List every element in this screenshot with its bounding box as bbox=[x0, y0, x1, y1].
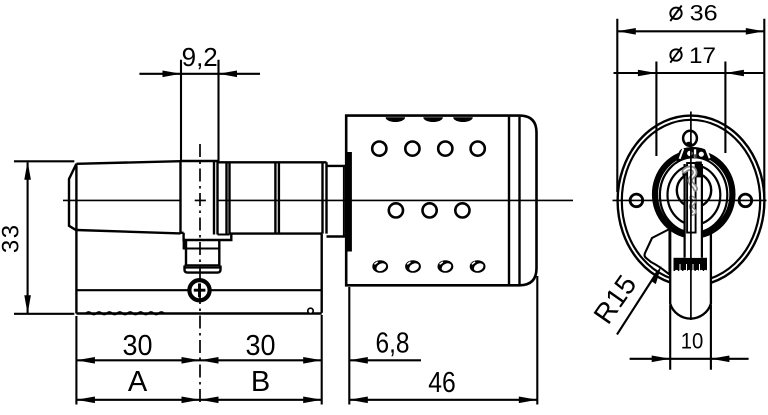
svg-text:30: 30 bbox=[246, 330, 276, 362]
svg-text:33: 33 bbox=[0, 223, 25, 253]
svg-text:17: 17 bbox=[689, 43, 716, 68]
svg-text:B: B bbox=[251, 366, 270, 398]
svg-text:46: 46 bbox=[428, 367, 456, 399]
svg-text:10: 10 bbox=[681, 329, 704, 354]
svg-text:36: 36 bbox=[690, 1, 718, 26]
svg-text:6,8: 6,8 bbox=[376, 328, 410, 360]
svg-text:A: A bbox=[128, 366, 148, 398]
svg-text:9,2: 9,2 bbox=[182, 42, 218, 72]
svg-text:30: 30 bbox=[123, 330, 153, 362]
